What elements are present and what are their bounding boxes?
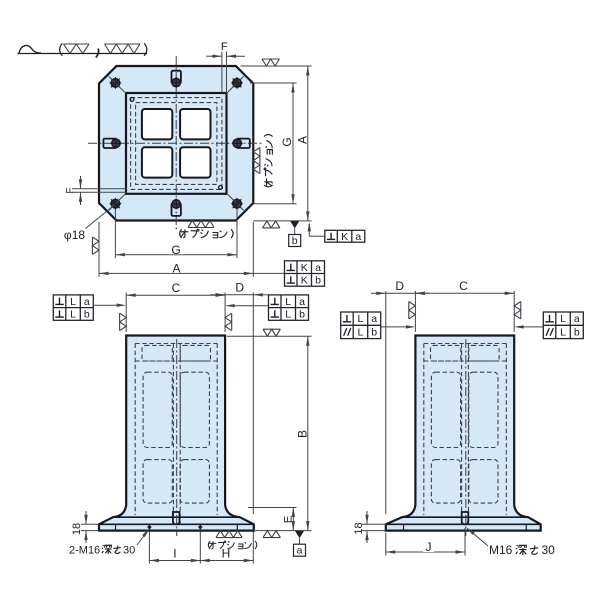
svg-text:L: L: [357, 327, 363, 339]
svg-text:I: I: [173, 547, 176, 561]
svg-text:b: b: [292, 235, 298, 247]
svg-text:a: a: [355, 231, 361, 243]
svg-text:C: C: [459, 279, 468, 293]
svg-text:J: J: [426, 540, 432, 554]
svg-text:F: F: [65, 187, 76, 193]
svg-text:A: A: [172, 262, 180, 276]
svg-text:B: B: [295, 430, 309, 438]
svg-text:a: a: [315, 262, 321, 274]
svg-text:φ18: φ18: [64, 228, 85, 242]
svg-text:a: a: [371, 313, 377, 325]
svg-text:L: L: [285, 296, 291, 308]
svg-text:K: K: [301, 275, 308, 287]
svg-text:L: L: [560, 313, 566, 325]
svg-text:G: G: [171, 243, 180, 257]
svg-text:E: E: [283, 516, 295, 523]
svg-text:L: L: [560, 327, 566, 339]
svg-text:b: b: [371, 327, 377, 339]
svg-text:L: L: [285, 309, 291, 321]
svg-text:G: G: [280, 137, 294, 146]
svg-text:b: b: [84, 309, 90, 321]
svg-text:H: H: [222, 547, 231, 561]
svg-text:M16: M16: [489, 543, 513, 557]
svg-text:18: 18: [353, 522, 365, 534]
svg-text:F: F: [221, 41, 228, 53]
svg-text:L: L: [70, 296, 76, 308]
svg-text:A: A: [295, 136, 309, 144]
svg-text:30: 30: [542, 543, 556, 557]
svg-text:K: K: [341, 231, 348, 243]
svg-text:L: L: [70, 309, 76, 321]
svg-text:a: a: [297, 545, 303, 557]
svg-text:a: a: [574, 313, 580, 325]
svg-text:18: 18: [71, 523, 83, 535]
svg-text:K: K: [301, 262, 308, 274]
svg-text:a: a: [299, 296, 305, 308]
svg-text:L: L: [357, 313, 363, 325]
svg-text:D: D: [235, 281, 244, 295]
svg-text:2-M16: 2-M16: [69, 545, 100, 557]
svg-text:30: 30: [123, 545, 135, 557]
svg-text:b: b: [299, 309, 305, 321]
svg-text:a: a: [84, 296, 90, 308]
svg-text:b: b: [574, 327, 580, 339]
svg-text:C: C: [172, 281, 181, 295]
svg-text:D: D: [395, 279, 404, 293]
svg-text:b: b: [315, 275, 321, 287]
